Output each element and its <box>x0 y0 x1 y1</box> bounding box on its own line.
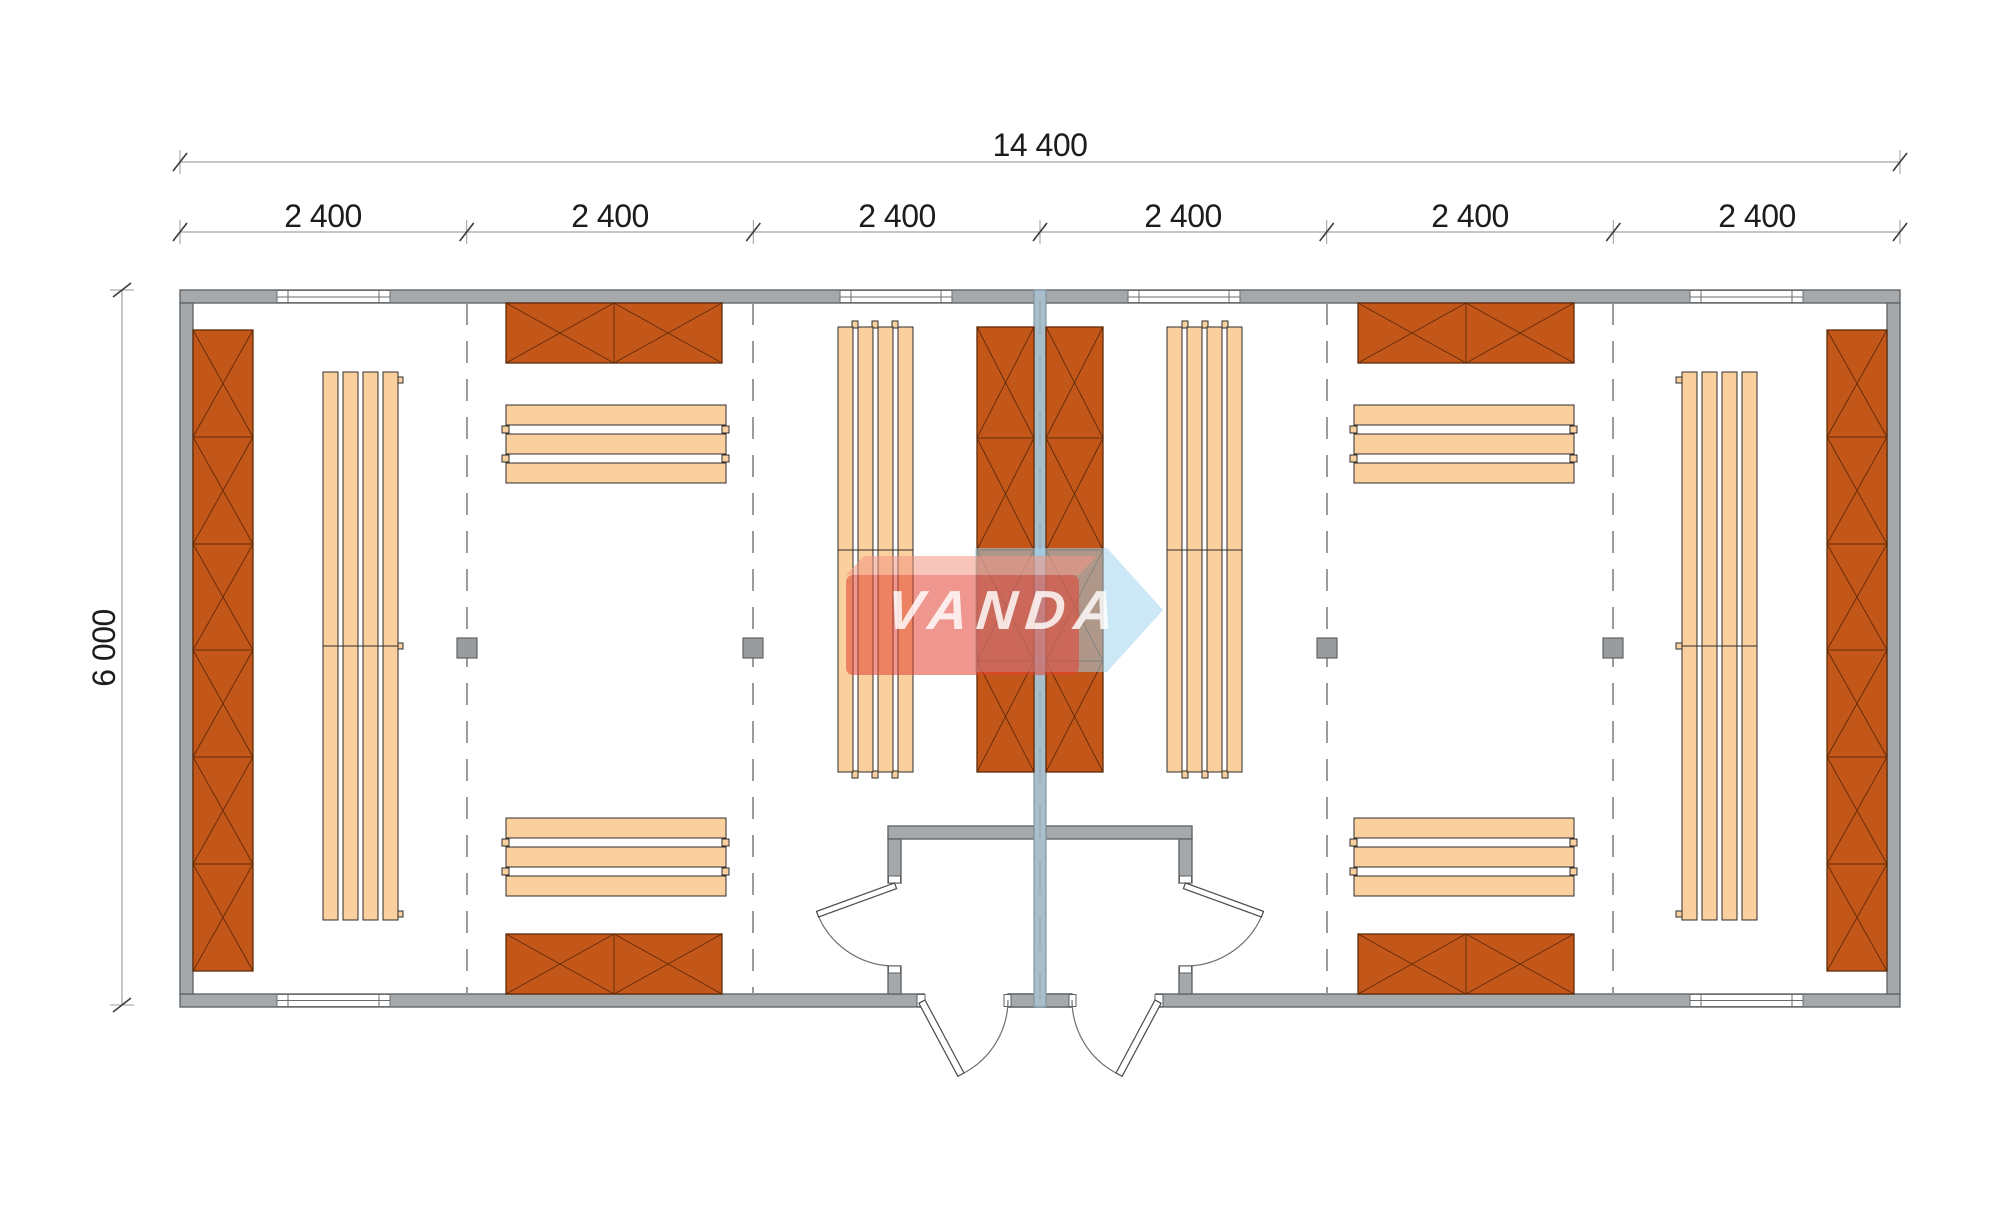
dimension-module-3: 2 400 <box>858 200 936 232</box>
dimension-total-width: 14 400 <box>993 129 1088 161</box>
partition-wall <box>1034 290 1046 1007</box>
bench-module2-top <box>502 405 729 483</box>
interior-door-right <box>1183 883 1263 966</box>
vestibule-wall-top-right <box>1046 826 1192 839</box>
vestibule-wall-top-left <box>888 826 1034 839</box>
window-north-4 <box>1690 291 1803 303</box>
window-south-1 <box>277 995 390 1007</box>
bench-module6 <box>1676 372 1757 920</box>
locker-module2-bottom <box>506 934 722 994</box>
window-north-2 <box>840 291 952 303</box>
plan-drawing <box>0 0 2000 1226</box>
column-3 <box>1317 638 1337 658</box>
bench-module5-bottom <box>1350 818 1577 896</box>
column-2 <box>743 638 763 658</box>
dimension-module-2: 2 400 <box>571 200 649 232</box>
window-north-3 <box>1128 291 1240 303</box>
wall-east <box>1887 303 1900 994</box>
locker-center-right <box>1046 327 1103 772</box>
window-south-2 <box>1690 995 1803 1007</box>
dimension-height: 6 000 <box>88 609 120 687</box>
dimension-module-1: 2 400 <box>284 200 362 232</box>
floor-plan: 14 400 2 400 2 400 2 400 2 400 2 400 2 4… <box>0 0 2000 1226</box>
dimension-module-6: 2 400 <box>1718 200 1796 232</box>
exterior-door-left <box>919 1000 1008 1076</box>
locker-west-wall <box>193 330 253 971</box>
dimension-module-4: 2 400 <box>1144 200 1222 232</box>
bench-module4 <box>1167 321 1242 778</box>
locker-module5-bottom <box>1358 934 1574 994</box>
exterior-door-right <box>1072 1000 1161 1076</box>
column-1 <box>457 638 477 658</box>
window-north-1 <box>277 291 390 303</box>
bench-module3 <box>838 321 913 778</box>
locker-module2-top <box>506 303 722 363</box>
dimension-module-5: 2 400 <box>1431 200 1509 232</box>
bench-module5-top <box>1350 405 1577 483</box>
bench-module2-bottom <box>502 818 729 896</box>
locker-east-wall <box>1827 330 1887 971</box>
bench-module1 <box>323 372 403 920</box>
interior-door-left <box>817 883 897 966</box>
locker-module5-top <box>1358 303 1574 363</box>
locker-center-left <box>977 327 1034 772</box>
wall-west <box>180 303 193 994</box>
column-4 <box>1603 638 1623 658</box>
